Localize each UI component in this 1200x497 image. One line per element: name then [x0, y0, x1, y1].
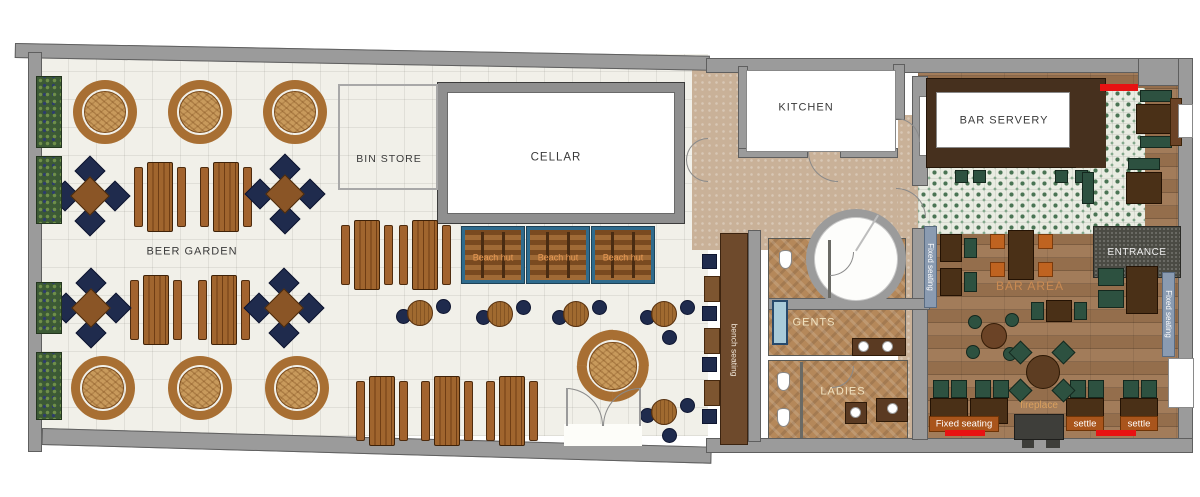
bench-seating-label: bench seating — [730, 324, 739, 377]
picnic-bench — [464, 381, 473, 441]
bar-center-table — [1008, 230, 1034, 280]
gents-sink — [882, 341, 893, 352]
square-table-group — [247, 156, 323, 232]
planter-box — [36, 352, 62, 420]
square-table-group — [53, 270, 129, 346]
garden-door-leaf — [639, 388, 641, 426]
round-table-top — [589, 342, 636, 389]
bar-stool — [1055, 170, 1068, 183]
orange-chair — [990, 262, 1005, 277]
green-stool — [966, 345, 980, 359]
fixed-left-table — [940, 234, 962, 262]
square-table-top — [71, 288, 111, 328]
booth-seat — [1123, 380, 1139, 398]
green-stool — [968, 315, 982, 329]
picnic-bench — [341, 225, 350, 285]
fixed-right-table — [1126, 266, 1158, 314]
round-table-group — [168, 80, 232, 144]
navy-stool — [662, 428, 677, 443]
entrance-chair-pair — [1082, 172, 1094, 204]
bar-square-table — [1046, 300, 1072, 322]
navy-stool — [662, 330, 677, 345]
servery-red-marker — [1100, 84, 1138, 91]
picnic-table-top — [354, 220, 380, 290]
picnic-table-top — [434, 376, 460, 446]
booth-seat — [975, 380, 991, 398]
beach-hut-label-3: Beach hut — [603, 254, 644, 263]
navy-stool — [680, 300, 695, 315]
picnic-table-group — [200, 162, 252, 232]
ladies-toilet — [777, 372, 790, 391]
orange-chair — [1038, 262, 1053, 277]
booth-seat — [933, 380, 949, 398]
fixed-right-seat — [1098, 290, 1124, 308]
round-table-group — [73, 80, 137, 144]
fireplace-hearth — [1014, 414, 1064, 440]
ladies-cubicle-wall — [800, 362, 803, 438]
bench-table-block — [704, 276, 720, 302]
square-table-top — [70, 176, 110, 216]
planter-box — [36, 76, 62, 148]
gents-urinal-trough — [772, 300, 788, 345]
lobby-floor — [814, 217, 898, 301]
picnic-bench — [173, 280, 182, 340]
green-chair — [1031, 302, 1044, 320]
navy-stool — [436, 299, 451, 314]
round-table-top — [84, 91, 126, 133]
right-wall-window-bay — [1168, 358, 1194, 408]
garden-door-gap — [564, 424, 642, 446]
picnic-bench — [130, 280, 139, 340]
round-table-top — [274, 91, 316, 133]
picnic-bench — [442, 225, 451, 285]
picnic-table-group — [356, 376, 408, 446]
booth-seat — [1141, 380, 1157, 398]
picnic-bench — [384, 225, 393, 285]
picnic-table-top — [211, 275, 237, 345]
fixed-left-chair — [964, 238, 977, 258]
entrance-bench-back — [1128, 158, 1160, 170]
navy-stool — [516, 300, 531, 315]
orange-chair — [1038, 234, 1053, 249]
settle-label-2: settle — [1128, 419, 1151, 429]
round-table-top — [276, 367, 318, 409]
garden-wc-divider-wall — [748, 230, 761, 442]
ladies-toilet — [777, 408, 790, 427]
picnic-table-top — [147, 162, 173, 232]
fixed-left-chair — [964, 272, 977, 292]
round-table-top — [179, 91, 221, 133]
navy-stool — [592, 300, 607, 315]
picnic-table-group — [198, 275, 250, 345]
bar-servery-counter-step — [1076, 92, 1106, 168]
booth-bench-back — [1140, 136, 1172, 148]
fireplace-label: fireplace — [1020, 401, 1058, 411]
booth-bench-back — [1140, 90, 1172, 102]
picnic-bench — [486, 381, 495, 441]
beach-hut-label-2: Beach hut — [538, 254, 579, 263]
bar-round-table — [981, 323, 1007, 349]
picnic-table-top — [213, 162, 239, 232]
green-stool — [1005, 313, 1019, 327]
picnic-table-group — [134, 162, 186, 232]
fireplace-leg — [1046, 440, 1060, 448]
bench-table-block — [704, 380, 720, 406]
kitchen-label: KITCHEN — [778, 103, 833, 114]
settle-label-1: settle — [1074, 419, 1097, 429]
picnic-bench — [529, 381, 538, 441]
gents-toilet — [779, 250, 792, 269]
orange-chair — [990, 234, 1005, 249]
bench-stool — [702, 357, 717, 372]
cellar-label: CELLAR — [531, 152, 582, 164]
bar-stool — [955, 170, 968, 183]
bench-stool — [702, 254, 717, 269]
navy-stool — [680, 398, 695, 413]
picnic-table-top — [412, 220, 438, 290]
planter-box — [36, 156, 62, 224]
picnic-bench — [200, 167, 209, 227]
picnic-bench — [399, 225, 408, 285]
picnic-table-group — [486, 376, 538, 446]
round-table-group — [168, 356, 232, 420]
garden-door-leaf — [566, 388, 568, 426]
picnic-bench — [134, 167, 143, 227]
poseur-table — [651, 301, 677, 327]
picnic-table-group — [399, 220, 451, 290]
round-table-group — [263, 80, 327, 144]
square-table-group — [246, 270, 322, 346]
right-wall-window — [1178, 104, 1193, 138]
bin-store-outline — [338, 84, 438, 190]
picnic-bench — [198, 280, 207, 340]
pub-floor-plan: BEER GARDEN BIN STORE CELLAR KITCHEN BAR… — [0, 0, 1200, 497]
square-table-group — [52, 158, 128, 234]
red-accent-strip — [945, 430, 985, 436]
beer-garden-label: BEER GARDEN — [146, 247, 237, 258]
fireplace-leg — [1022, 440, 1034, 448]
bar-stool — [973, 170, 986, 183]
ladies-label: LADIES — [820, 387, 865, 398]
bin-store-label: BIN STORE — [356, 154, 421, 165]
entrance-table — [1126, 172, 1162, 204]
booth-seat — [1088, 380, 1104, 398]
round-table-group — [265, 356, 329, 420]
picnic-table-group — [421, 376, 473, 446]
picnic-bench — [399, 381, 408, 441]
booth-seat — [993, 380, 1009, 398]
green-chair — [1074, 302, 1087, 320]
picnic-table-top — [369, 376, 395, 446]
round-table-group — [71, 356, 135, 420]
gents-label: GENTS — [793, 318, 836, 329]
square-table-top — [265, 174, 305, 214]
bar-area-label: BAR AREA — [996, 280, 1064, 292]
picnic-table-top — [499, 376, 525, 446]
bar-servery-label: BAR SERVERY — [960, 116, 1049, 127]
ladies-sink — [887, 403, 898, 414]
poseur-table — [487, 301, 513, 327]
ladies-sink — [850, 407, 861, 418]
picnic-table-group — [130, 275, 182, 345]
red-accent-strip — [1096, 430, 1136, 436]
bench-table-block — [704, 328, 720, 354]
building-bottom-wall — [706, 438, 1193, 453]
picnic-bench — [177, 167, 186, 227]
gents-sink — [858, 341, 869, 352]
bench-stool — [702, 409, 717, 424]
poseur-table — [407, 300, 433, 326]
fixed-right-seat — [1098, 268, 1124, 286]
picnic-table-top — [143, 275, 169, 345]
picnic-table-group — [341, 220, 393, 290]
bar-round-table-large — [1026, 355, 1060, 389]
beach-hut-label-1: Beach hut — [473, 254, 514, 263]
square-table-top — [264, 288, 304, 328]
fixed-left-table — [940, 268, 962, 296]
poseur-table — [563, 301, 589, 327]
fixed-seating-right-label: Fixed seating — [1164, 290, 1172, 338]
round-table-top — [82, 367, 124, 409]
planter-box — [36, 282, 62, 334]
picnic-bench — [421, 381, 430, 441]
picnic-bench — [356, 381, 365, 441]
entrance-label: ENTRANCE — [1107, 248, 1166, 258]
fixed-seating-left-label: Fixed seating — [926, 243, 934, 291]
booth-seat — [951, 380, 967, 398]
bench-stool — [702, 306, 717, 321]
fixed-seating-bottom-label: Fixed seating — [936, 419, 993, 429]
poseur-table — [651, 399, 677, 425]
round-table-top — [179, 367, 221, 409]
